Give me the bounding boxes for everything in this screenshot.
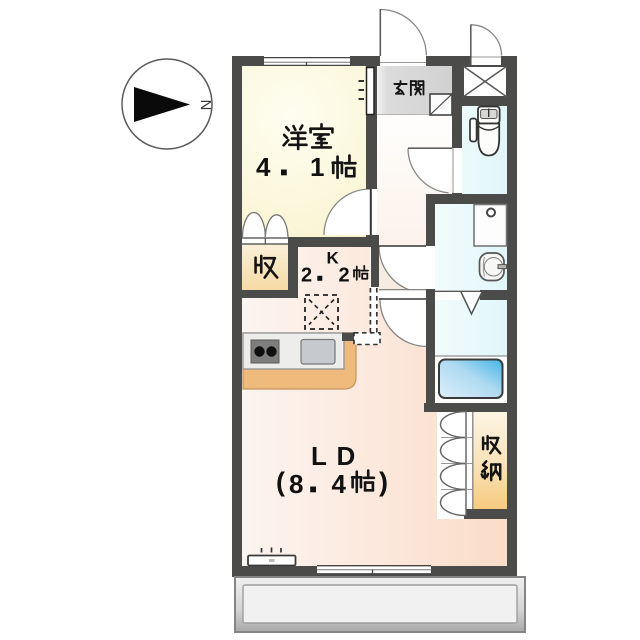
svg-text:(: (: [276, 467, 285, 497]
svg-text:4: 4: [256, 152, 271, 182]
svg-text:4: 4: [332, 469, 347, 499]
svg-text:1: 1: [310, 152, 324, 182]
svg-text:D: D: [337, 441, 356, 471]
svg-text:8: 8: [289, 469, 303, 499]
svg-text:2: 2: [301, 265, 312, 287]
svg-text:2: 2: [339, 265, 350, 287]
svg-text:L: L: [311, 441, 327, 471]
svg-text:N: N: [197, 100, 214, 111]
svg-text:): ): [379, 467, 388, 497]
